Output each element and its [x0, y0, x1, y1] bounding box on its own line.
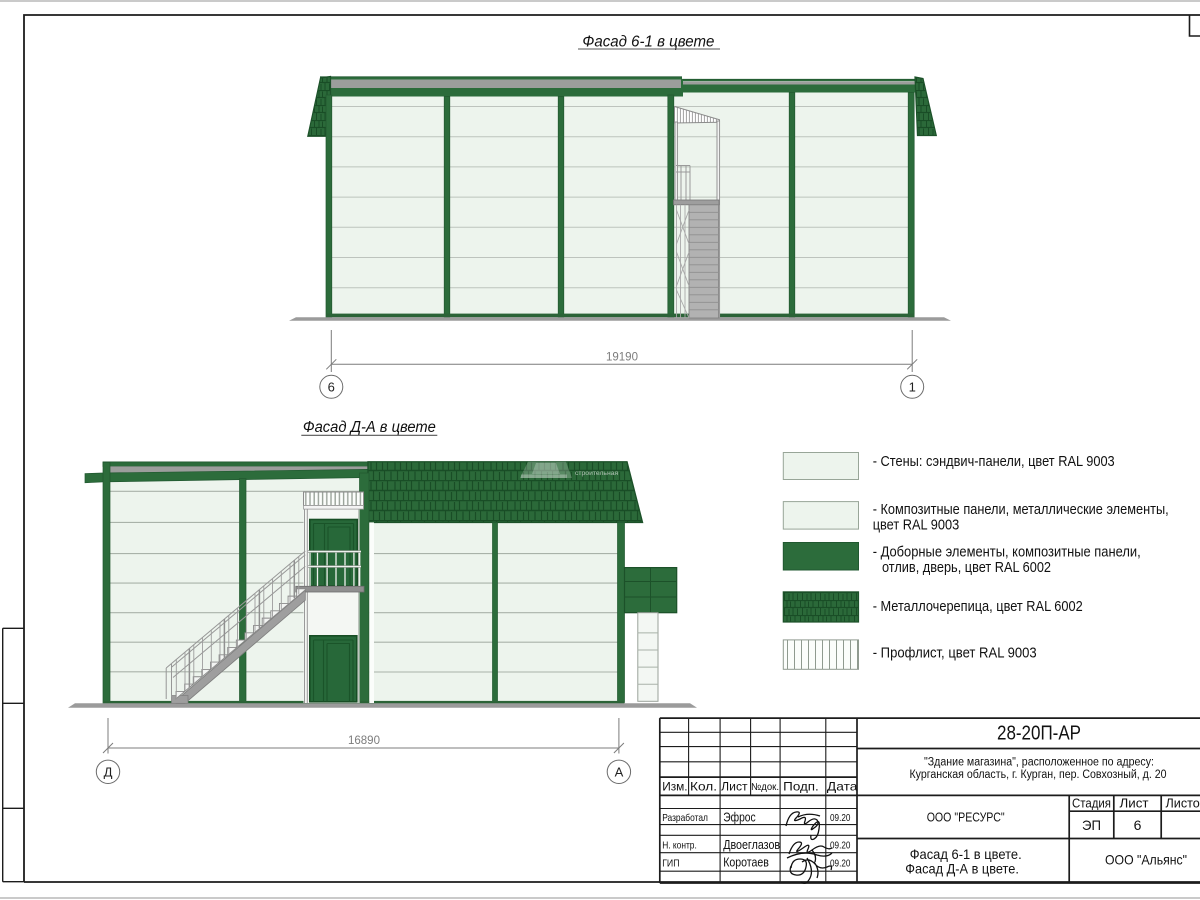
- svg-text:6: 6: [328, 379, 335, 394]
- svg-text:6: 6: [1134, 817, 1142, 833]
- svg-text:Подп.: Подп.: [783, 780, 819, 794]
- svg-text:№док.: №док.: [751, 782, 779, 793]
- svg-text:- Доборные элементы, композит: - Доборные элементы, композитные панели,: [873, 544, 1141, 561]
- svg-text:- Профлист, цвет RAL 9003: - Профлист, цвет RAL 9003: [873, 645, 1037, 662]
- svg-text:ООО "Альянс": ООО "Альянс": [1105, 852, 1187, 868]
- svg-text:Изм.: Изм.: [662, 780, 687, 794]
- svg-text:09.20: 09.20: [830, 857, 851, 869]
- svg-text:09.20: 09.20: [830, 839, 851, 851]
- svg-text:Стадия: Стадия: [1072, 796, 1111, 811]
- svg-text:Эфрос: Эфрос: [723, 810, 756, 824]
- svg-text:09.20: 09.20: [830, 812, 851, 824]
- svg-text:Курганская область, г. Курган,: Курганская область, г. Курган, пер. Совх…: [910, 769, 1167, 781]
- svg-text:строительная: строительная: [575, 470, 619, 477]
- svg-text:16890: 16890: [348, 735, 380, 747]
- svg-text:А: А: [615, 764, 624, 779]
- svg-text:Д: Д: [104, 764, 113, 779]
- svg-text:ООО "РЕСУРС": ООО "РЕСУРС": [927, 810, 1005, 825]
- svg-text:Листов: Листов: [1166, 796, 1200, 811]
- svg-text:отлив, дверь, цвет RAL 6002: отлив, дверь, цвет RAL 6002: [882, 559, 1051, 576]
- svg-text:ЭП: ЭП: [1082, 817, 1101, 833]
- svg-text:Двоеглазов: Двоеглазов: [723, 838, 780, 852]
- svg-text:"Здание магазина", расположенн: "Здание магазина", расположенное по адре…: [924, 757, 1154, 769]
- svg-text:цвет RAL 9003: цвет RAL 9003: [873, 517, 960, 534]
- svg-text:Кол.: Кол.: [690, 780, 717, 794]
- svg-text:Фасад Д-А в цвете.: Фасад Д-А в цвете.: [905, 861, 1019, 877]
- svg-text:28-20П-АР: 28-20П-АР: [997, 723, 1081, 745]
- svg-text:- Стены: сэндвич-панели, цвет: - Стены: сэндвич-панели, цвет RAL 9003: [873, 453, 1115, 470]
- svg-text:Коротаев: Коротаев: [723, 856, 769, 870]
- svg-text:- Металлочерепица, цвет RAL 60: - Металлочерепица, цвет RAL 6002: [873, 598, 1083, 615]
- svg-text:Н. контр.: Н. контр.: [662, 839, 697, 851]
- svg-text:Лист: Лист: [1120, 796, 1149, 811]
- svg-text:Лист: Лист: [721, 780, 748, 794]
- svg-text:Разработал: Разработал: [662, 812, 708, 824]
- svg-text:Фасад 6-1 в цвете: Фасад 6-1 в цвете: [582, 33, 714, 50]
- svg-text:Дата: Дата: [827, 780, 858, 794]
- svg-text:- Композитные панели, металлич: - Композитные панели, металлические элем…: [873, 501, 1169, 518]
- svg-text:ГИП: ГИП: [662, 857, 679, 869]
- svg-text:Фасад Д-А в цвете: Фасад Д-А в цвете: [303, 419, 436, 436]
- svg-text:19190: 19190: [606, 352, 638, 364]
- svg-text:1: 1: [909, 379, 916, 394]
